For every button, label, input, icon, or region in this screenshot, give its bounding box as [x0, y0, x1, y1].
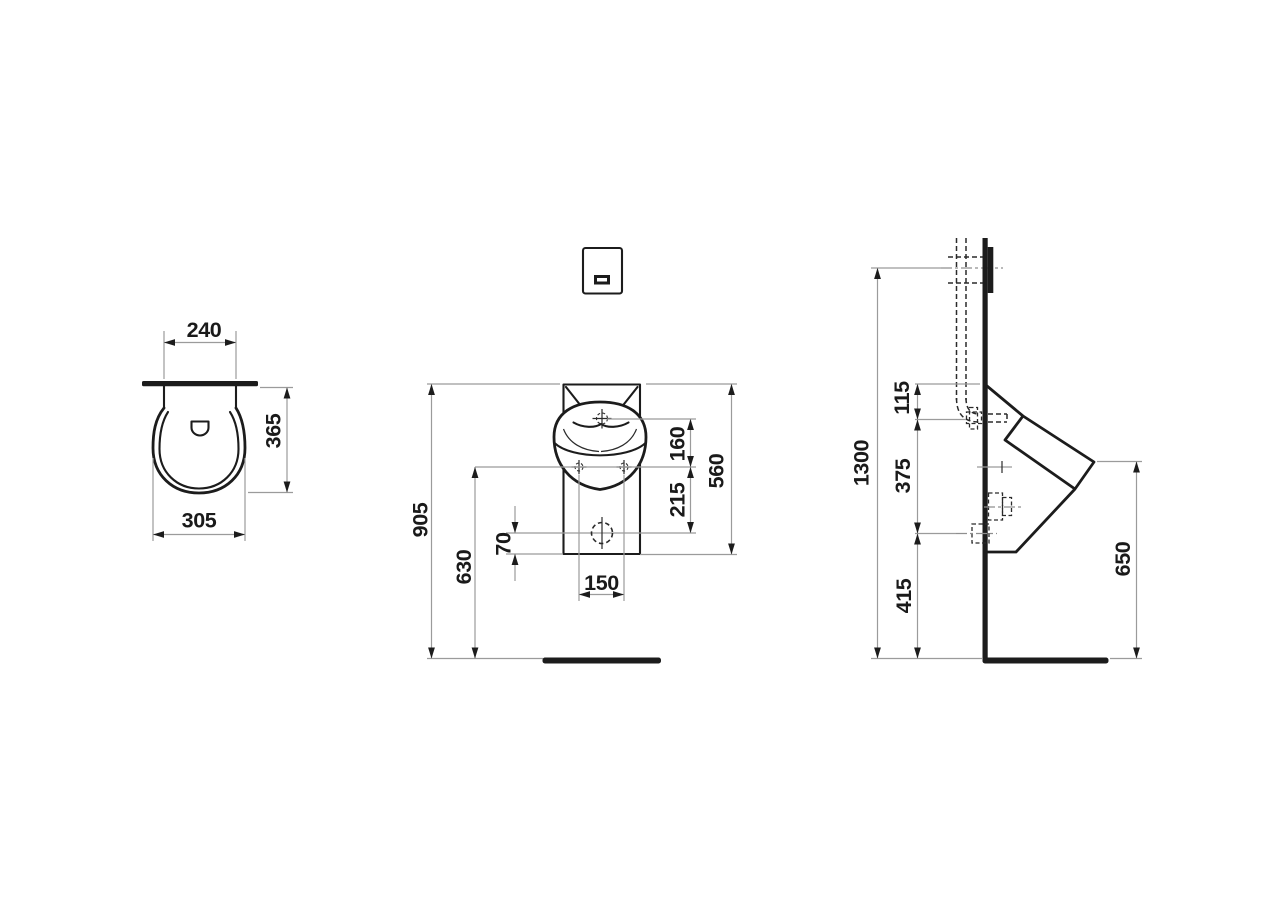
dim-label-415: 415: [892, 578, 916, 613]
dim-outlet-height: 415: [892, 534, 918, 659]
dim-inlet-to-outlet: 375: [891, 420, 918, 534]
dim-label-150: 150: [584, 571, 619, 595]
dim-fixing-height: 630: [452, 467, 476, 659]
mounting-edges: [164, 386, 236, 410]
dim-flush-center-height: 1300: [850, 268, 878, 659]
dim-back-width: 240: [164, 318, 236, 379]
dim-ceramic-height: 560: [705, 384, 732, 555]
top-view: 240 365 305: [142, 318, 293, 541]
dim-tap-to-fixing: 160: [666, 419, 691, 467]
flush-plate-side: [988, 247, 994, 293]
side-fixing-mark: [977, 461, 1012, 473]
dim-label-70: 70: [492, 532, 516, 556]
dim-label-560: 560: [705, 453, 729, 488]
dim-label-160: 160: [666, 426, 690, 461]
dim-drain-offset: 70: [492, 506, 516, 581]
wall-line: [142, 381, 258, 386]
sensor-window: [596, 277, 609, 284]
dim-fixing-to-drain: 215: [666, 467, 691, 533]
dim-label-1300: 1300: [850, 439, 874, 486]
floor-line-side: [983, 658, 1109, 664]
front-view: 905 630 70 150 160 215 560: [409, 248, 738, 664]
dim-label-215: 215: [666, 482, 690, 517]
dim-label-905: 905: [409, 502, 433, 537]
dim-top-to-inlet: 115: [890, 381, 918, 420]
dim-label-630: 630: [452, 549, 476, 584]
dim-label-365: 365: [262, 413, 286, 448]
sensor-plate: [583, 248, 622, 294]
drain-fittings: [956, 493, 1021, 543]
drawing-page: 240 365 305: [0, 0, 1280, 900]
floor-line: [543, 658, 662, 664]
wall-line-side: [983, 238, 988, 662]
dim-label-375: 375: [891, 458, 915, 493]
inlet-drain-opening: [192, 422, 209, 436]
dim-label-240: 240: [187, 318, 222, 342]
dim-label-115: 115: [890, 381, 914, 415]
dim-overall-height: 905: [409, 384, 433, 659]
dim-front-edge-height: 650: [1111, 462, 1137, 659]
dim-depth: 365: [248, 388, 293, 493]
dim-hole-spacing: 150: [579, 571, 624, 595]
dim-label-650: 650: [1111, 541, 1135, 576]
side-view: 1300 115 375 415 650: [850, 238, 1143, 664]
urinal-profile: [987, 386, 1094, 552]
technical-drawing: 240 365 305: [0, 0, 1280, 900]
flush-sensor-box: [583, 248, 622, 294]
side-ext-lines: [871, 384, 1142, 659]
dim-label-305: 305: [182, 509, 217, 533]
concealed-flush-pipe: [948, 238, 1007, 429]
